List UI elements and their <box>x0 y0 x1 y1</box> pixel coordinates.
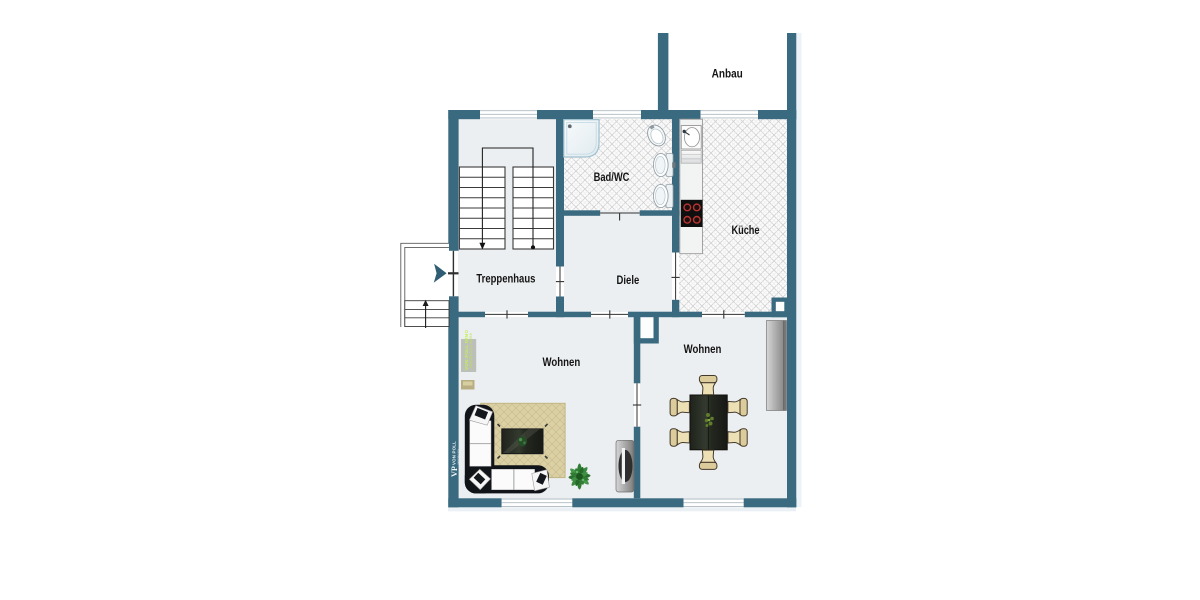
svg-text:VP: VP <box>450 466 459 477</box>
svg-text:VON POLL: VON POLL <box>452 441 457 465</box>
svg-text:Anbau: Anbau <box>712 69 743 81</box>
svg-text:IMMOBILIEN: IMMOBILIEN <box>457 449 461 465</box>
svg-text:Küche: Küche <box>731 225 759 237</box>
svg-text:Wohnen: Wohnen <box>684 344 722 356</box>
svg-text:IMMOBILIEN GMBH: IMMOBILIEN GMBH <box>469 332 473 368</box>
svg-text:Diele: Diele <box>617 275 640 287</box>
svg-text:Bad/WC: Bad/WC <box>594 172 630 184</box>
svg-text:Treppenhaus: Treppenhaus <box>476 274 535 286</box>
svg-text:Wohnen: Wohnen <box>543 357 581 369</box>
